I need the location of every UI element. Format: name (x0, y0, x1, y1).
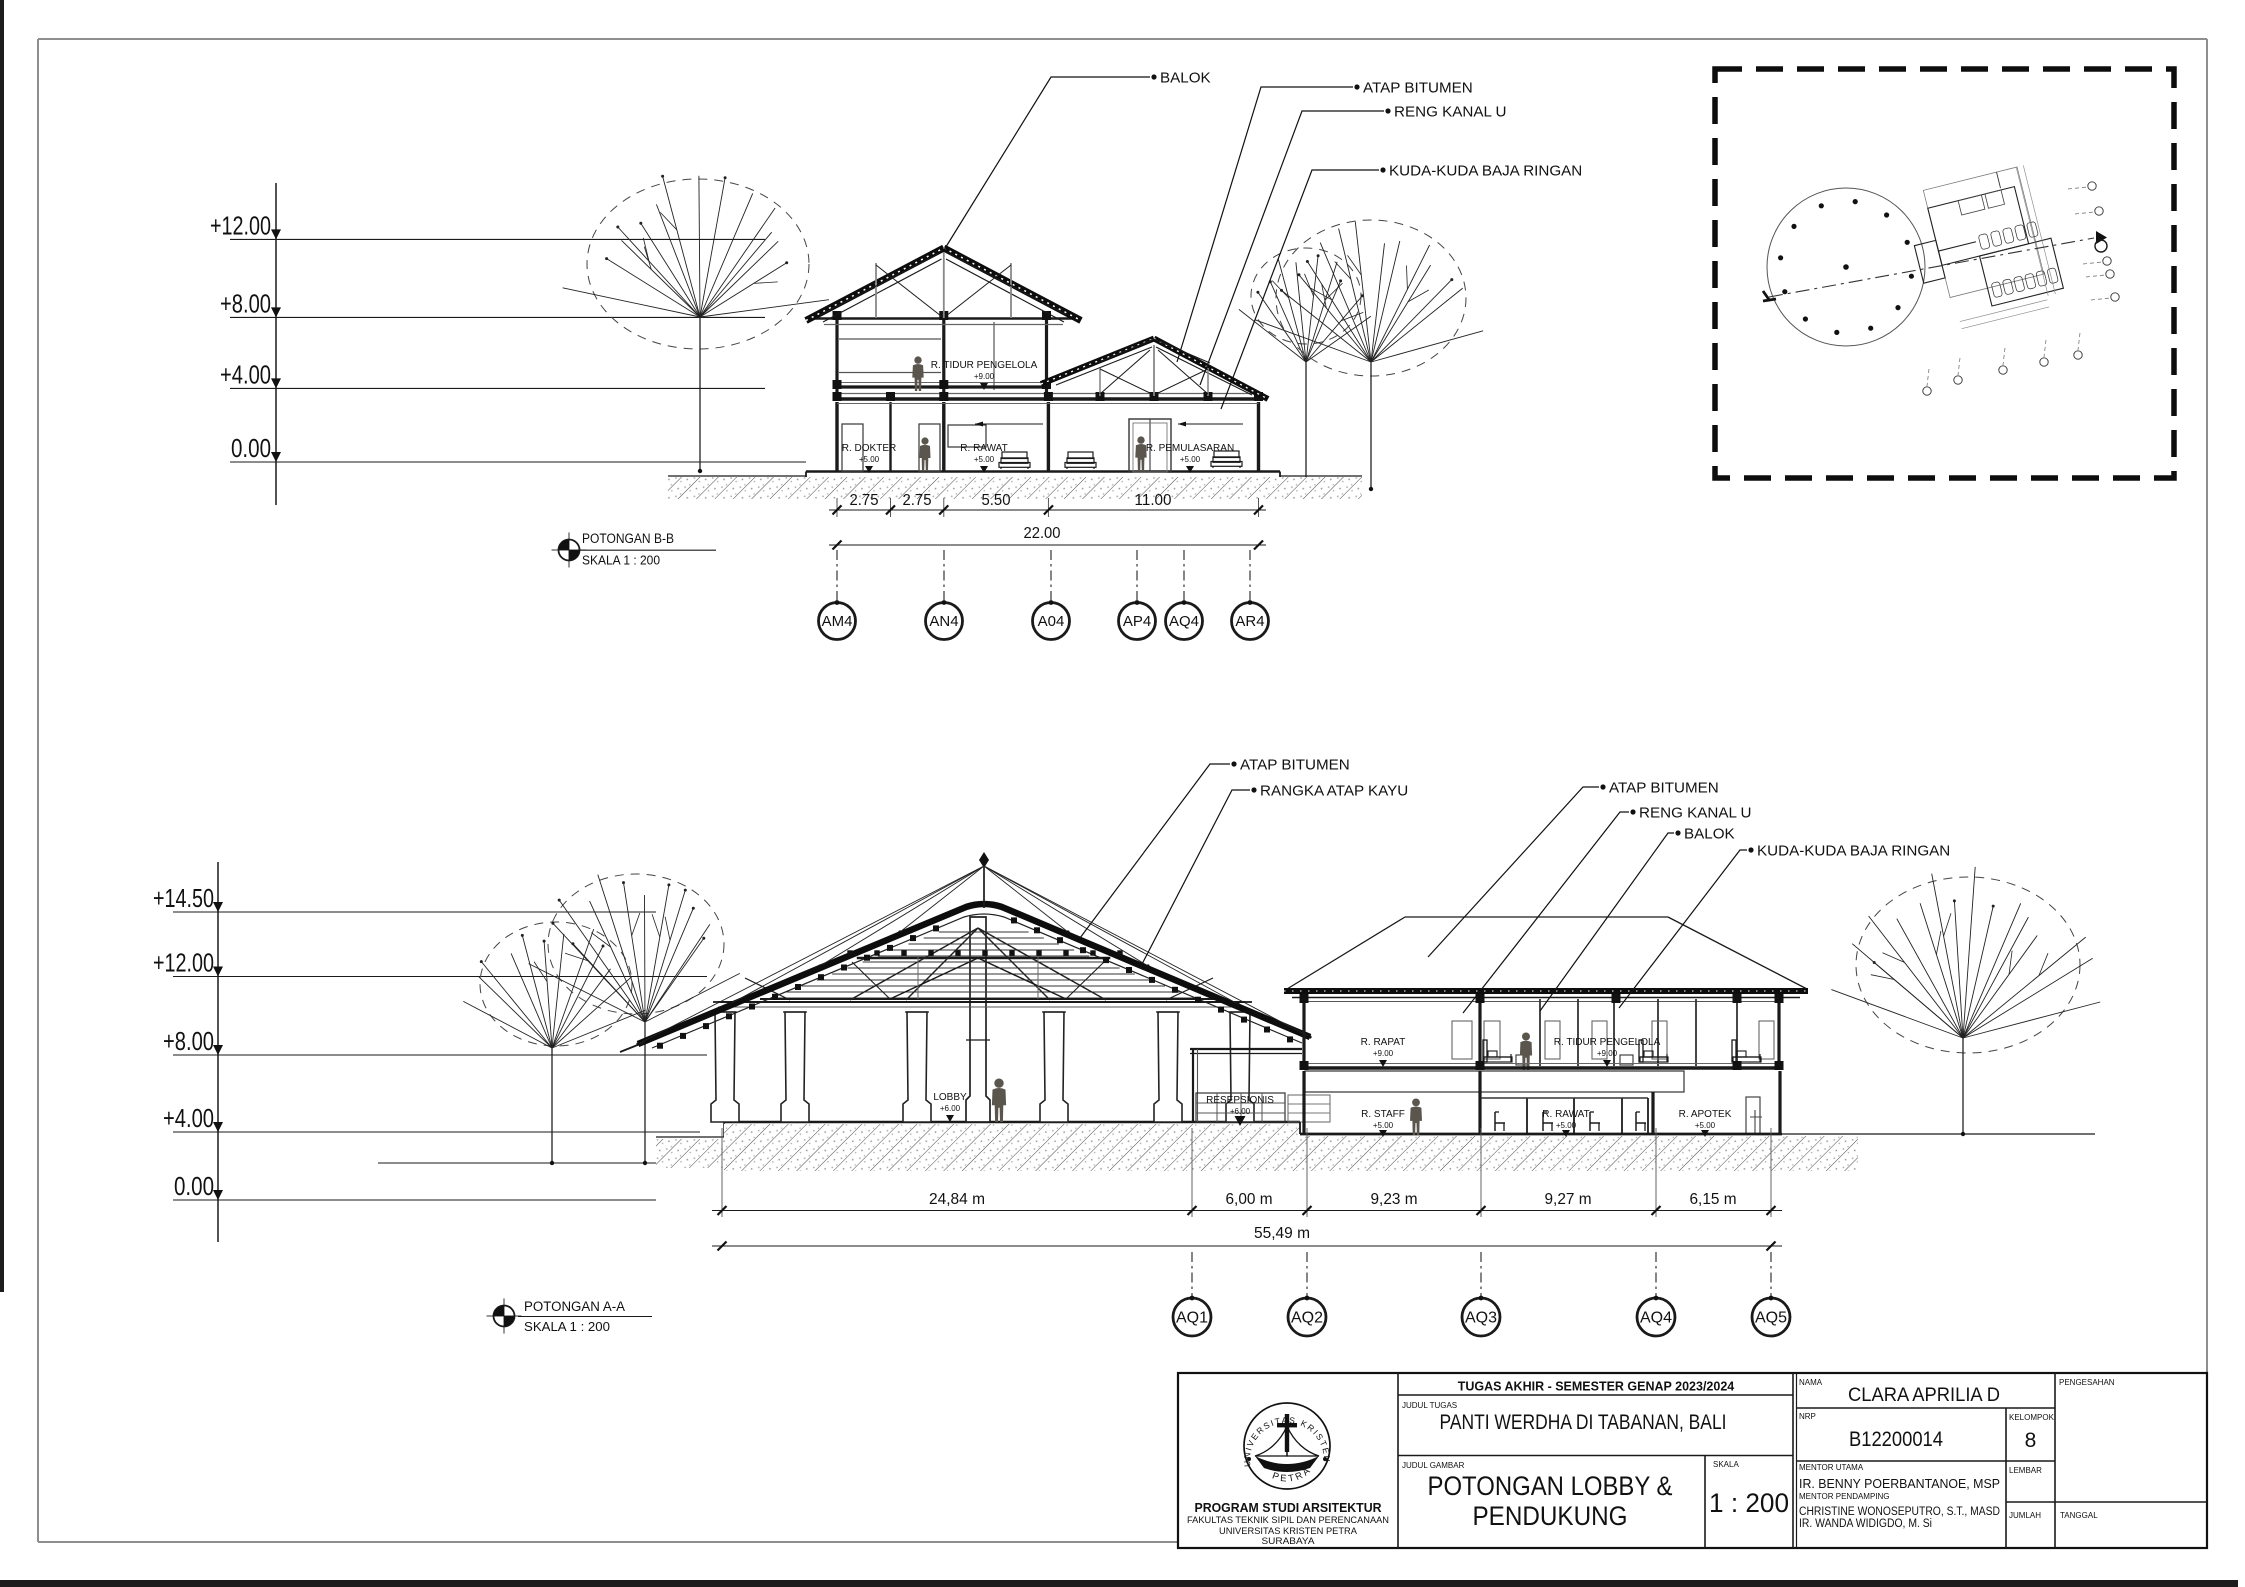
svg-text:POTONGAN A-A: POTONGAN A-A (524, 1299, 625, 1314)
svg-text:+5.00: +5.00 (1373, 1121, 1394, 1130)
svg-text:A04: A04 (1038, 613, 1065, 630)
svg-text:+5.00: +5.00 (1695, 1121, 1716, 1130)
svg-text:+5.00: +5.00 (974, 455, 995, 464)
svg-text:2.75: 2.75 (850, 492, 879, 509)
svg-text:FAKULTAS TEKNIK SIPIL DAN PERE: FAKULTAS TEKNIK SIPIL DAN PERENCANAAN (1187, 1515, 1389, 1526)
svg-text:PANTI WERDHA DI TABANAN, BALI: PANTI WERDHA DI TABANAN, BALI (1440, 1411, 1727, 1434)
svg-text:0.00: 0.00 (174, 1171, 214, 1201)
svg-text:8: 8 (2025, 1429, 2037, 1452)
svg-text:R. TIDUR PENGELOLA: R. TIDUR PENGELOLA (931, 360, 1038, 371)
svg-text:RENG KANAL U: RENG KANAL U (1394, 104, 1507, 121)
svg-text:AQ1: AQ1 (1176, 1310, 1208, 1327)
svg-text:AR4: AR4 (1235, 613, 1264, 630)
svg-text:R. RAPAT: R. RAPAT (1361, 1037, 1406, 1048)
svg-text:TANGGAL: TANGGAL (2060, 1511, 2098, 1520)
svg-text:+5.00: +5.00 (1556, 1121, 1577, 1130)
svg-text:KELOMPOK: KELOMPOK (2009, 1413, 2055, 1422)
svg-text:R. APOTEK: R. APOTEK (1679, 1109, 1732, 1120)
svg-text:+9.00: +9.00 (1373, 1049, 1394, 1058)
svg-text:9,23 m: 9,23 m (1371, 1191, 1418, 1208)
svg-text:LEMBAR: LEMBAR (2009, 1466, 2042, 1475)
svg-text:BALOK: BALOK (1160, 70, 1211, 87)
svg-text:RESEPSIONIS: RESEPSIONIS (1206, 1095, 1274, 1106)
svg-text:+9.00: +9.00 (1597, 1049, 1618, 1058)
svg-text:JUDUL TUGAS: JUDUL TUGAS (1402, 1401, 1457, 1410)
svg-text:AQ5: AQ5 (1755, 1310, 1787, 1327)
svg-text:AQ2: AQ2 (1291, 1310, 1323, 1327)
svg-text:6,00 m: 6,00 m (1226, 1191, 1273, 1208)
svg-text:AP4: AP4 (1123, 613, 1151, 630)
svg-text:B12200014: B12200014 (1849, 1428, 1943, 1451)
svg-text:AM4: AM4 (822, 613, 853, 630)
svg-text:NAMA: NAMA (1799, 1378, 1823, 1387)
svg-text:R. STAFF: R. STAFF (1361, 1109, 1405, 1120)
svg-text:POTONGAN B-B: POTONGAN B-B (582, 531, 674, 546)
svg-text:SURABAYA: SURABAYA (1262, 1536, 1316, 1547)
svg-text:AQ3: AQ3 (1465, 1310, 1497, 1327)
svg-text:R. DOKTER: R. DOKTER (842, 443, 896, 454)
svg-text:AQ4: AQ4 (1640, 1310, 1672, 1327)
svg-text:ATAP BITUMEN: ATAP BITUMEN (1609, 780, 1719, 797)
svg-text:AN4: AN4 (929, 613, 958, 630)
svg-text:JUMLAH: JUMLAH (2009, 1511, 2041, 1520)
svg-text:SKALA 1 : 200: SKALA 1 : 200 (524, 1319, 610, 1334)
svg-text:SKALA: SKALA (1713, 1460, 1739, 1469)
svg-text:2.75: 2.75 (903, 492, 932, 509)
svg-text:PENDUKUNG: PENDUKUNG (1473, 1501, 1628, 1531)
svg-text:R. PEMULASARAN: R. PEMULASARAN (1146, 443, 1234, 454)
svg-text:NRP: NRP (1799, 1412, 1816, 1421)
svg-text:24,84 m: 24,84 m (929, 1191, 985, 1208)
svg-text:+6.00: +6.00 (940, 1104, 961, 1113)
svg-text:R. RAWAT: R. RAWAT (1542, 1109, 1589, 1120)
svg-text:+5.00: +5.00 (859, 455, 880, 464)
svg-text:+8.00: +8.00 (220, 288, 271, 318)
svg-text:IR. BENNY POERBANTANOE, MSP: IR. BENNY POERBANTANOE, MSP (1799, 1476, 2000, 1491)
svg-text:PROGRAM STUDI ARSITEKTUR: PROGRAM STUDI ARSITEKTUR (1195, 1501, 1382, 1515)
svg-text:6,15 m: 6,15 m (1690, 1191, 1737, 1208)
svg-text:KUDA-KUDA BAJA RINGAN: KUDA-KUDA BAJA RINGAN (1389, 163, 1582, 180)
svg-text:ATAP BITUMEN: ATAP BITUMEN (1363, 80, 1473, 97)
svg-text:TUGAS AKHIR - SEMESTER GENAP 2: TUGAS AKHIR - SEMESTER GENAP 2023/2024 (1458, 1380, 1735, 1394)
svg-text:BALOK: BALOK (1684, 826, 1735, 843)
svg-text:R. TIDUR PENGELOLA: R. TIDUR PENGELOLA (1554, 1037, 1661, 1048)
svg-text:R. RAWAT: R. RAWAT (960, 443, 1007, 454)
svg-text:SKALA 1 : 200: SKALA 1 : 200 (582, 553, 660, 568)
svg-text:+9.00: +9.00 (974, 372, 995, 381)
svg-text:MENTOR PENDAMPING: MENTOR PENDAMPING (1799, 1492, 1890, 1501)
svg-text:+12.00: +12.00 (210, 210, 271, 240)
svg-text:AQ4: AQ4 (1169, 613, 1199, 630)
svg-text:CLARA APRILIA D: CLARA APRILIA D (1848, 1385, 2000, 1406)
svg-text:+4.00: +4.00 (163, 1103, 214, 1133)
svg-text:RANGKA ATAP KAYU: RANGKA ATAP KAYU (1260, 783, 1408, 800)
svg-text:LOBBY: LOBBY (933, 1092, 967, 1103)
svg-text:CHRISTINE WONOSEPUTRO, S.T., M: CHRISTINE WONOSEPUTRO, S.T., MASD (1799, 1506, 2000, 1518)
svg-text:KUDA-KUDA BAJA RINGAN: KUDA-KUDA BAJA RINGAN (1757, 843, 1950, 860)
svg-text:PENGESAHAN: PENGESAHAN (2059, 1378, 2115, 1387)
svg-text:+8.00: +8.00 (163, 1026, 214, 1056)
svg-text:+5.00: +5.00 (1180, 455, 1201, 464)
svg-text:RENG KANAL U: RENG KANAL U (1639, 805, 1752, 822)
svg-text:22.00: 22.00 (1024, 525, 1061, 542)
svg-text:JUDUL GAMBAR: JUDUL GAMBAR (1402, 1461, 1465, 1470)
svg-text:1 : 200: 1 : 200 (1709, 1488, 1789, 1518)
svg-text:IR. WANDA WIDIGDO, M. Si: IR. WANDA WIDIGDO, M. Si (1799, 1518, 1932, 1530)
svg-text:ATAP BITUMEN: ATAP BITUMEN (1240, 757, 1350, 774)
svg-text:55,49 m: 55,49 m (1254, 1225, 1310, 1242)
svg-text:+6.00: +6.00 (1230, 1107, 1251, 1116)
svg-text:+12.00: +12.00 (153, 948, 214, 978)
svg-text:0.00: 0.00 (231, 433, 271, 463)
svg-text:POTONGAN LOBBY &: POTONGAN LOBBY & (1428, 1471, 1673, 1501)
svg-text:MENTOR UTAMA: MENTOR UTAMA (1799, 1463, 1864, 1472)
svg-text:+14.50: +14.50 (153, 883, 214, 913)
svg-text:+4.00: +4.00 (220, 359, 271, 389)
svg-text:5.50: 5.50 (982, 492, 1011, 509)
svg-text:11.00: 11.00 (1135, 492, 1172, 509)
svg-text:9,27 m: 9,27 m (1545, 1191, 1592, 1208)
